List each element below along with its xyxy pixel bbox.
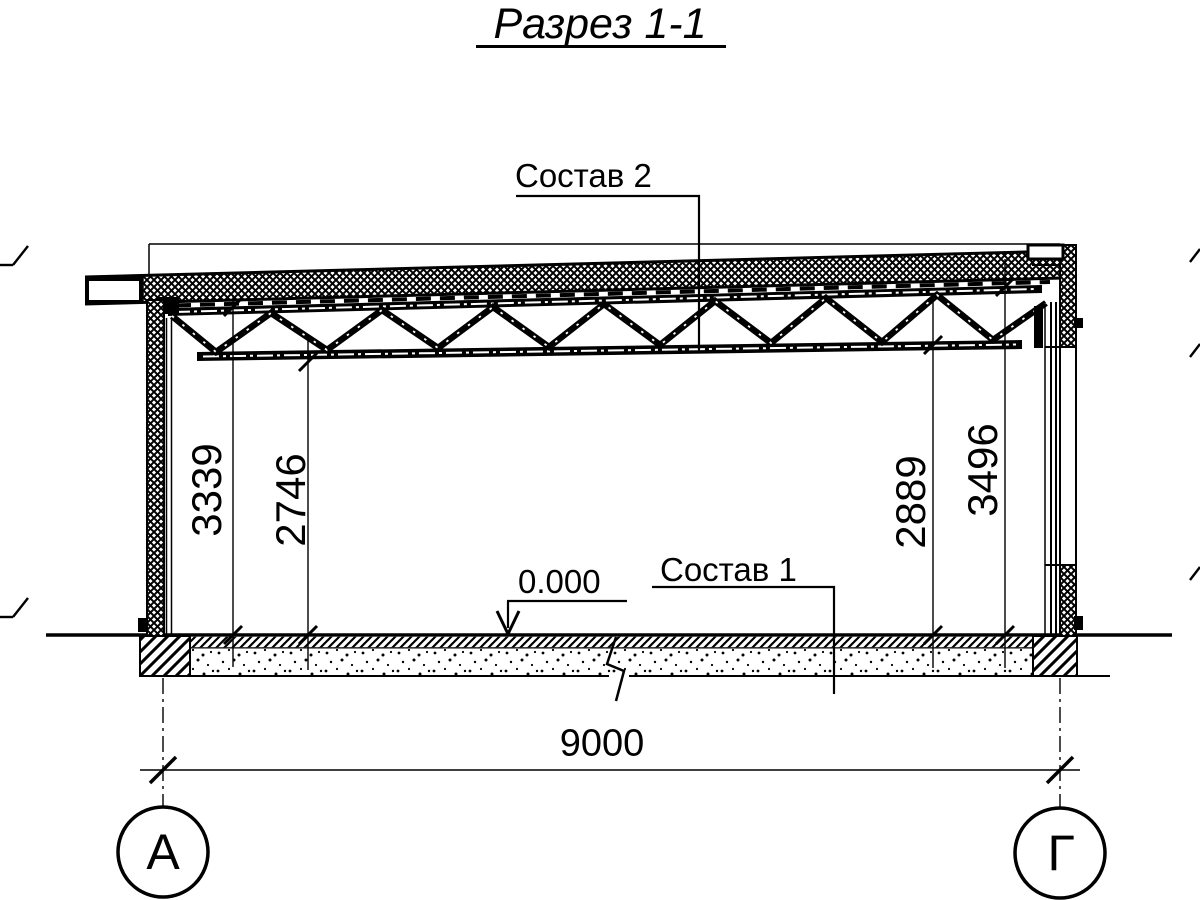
- dim-right-truss-top: 3496: [959, 423, 1007, 516]
- right-wall: [1028, 245, 1083, 636]
- grid-axes: [118, 678, 1105, 898]
- right-wall-lower-hatch: [1060, 565, 1076, 636]
- level-arrow: [497, 611, 508, 634]
- left-wall-base-detail: [138, 618, 147, 632]
- floor-slab: [46, 635, 1172, 701]
- window-head-flashing: [1074, 318, 1083, 328]
- truss-right-bearing: [1034, 306, 1043, 348]
- wall-base-flashing: [1074, 616, 1083, 630]
- dim-overall-width: 9000: [560, 723, 645, 766]
- right-foundation: [1033, 636, 1077, 676]
- axis-label-a: А: [146, 823, 179, 881]
- axis-label-g: Г: [1047, 824, 1074, 882]
- level-mark-value: 0.000: [518, 563, 601, 601]
- title-underline: [476, 45, 726, 48]
- left-foundation: [140, 636, 190, 676]
- left-wall: [138, 300, 172, 636]
- eave-detail: [87, 279, 141, 302]
- dim-right-truss-bottom: 2889: [887, 455, 935, 548]
- dim-left-truss-top: 3339: [183, 443, 231, 536]
- roof-composition-callout: Состав 2: [515, 157, 652, 195]
- parapet-coping: [1028, 245, 1063, 259]
- drawing-sheet: Разрез 1-1 Состав 2 Состав 1 0.000 9000 …: [0, 0, 1200, 900]
- floor-composition-callout: Состав 1: [660, 551, 797, 589]
- drawing-title: Разрез 1-1: [493, 0, 706, 49]
- dim-left-truss-bottom: 2746: [267, 453, 315, 546]
